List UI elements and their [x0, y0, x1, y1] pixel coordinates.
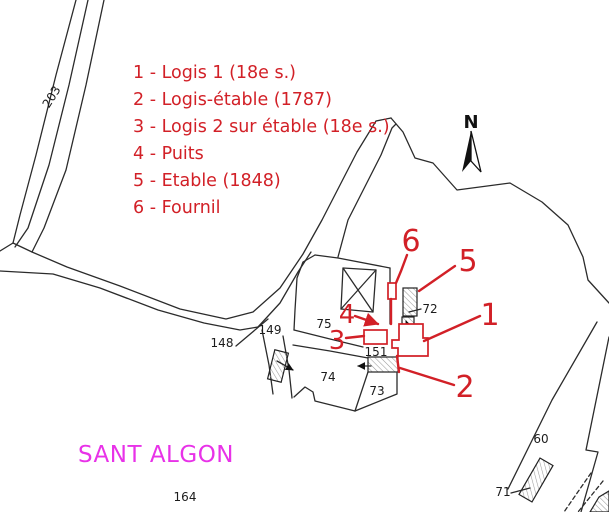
leader-6 — [396, 255, 407, 283]
site-plan: N 1 - Logis 1 (18e s.) 2 - Logis-étable … — [0, 0, 609, 512]
legend-item-4: 4 - Puits — [133, 144, 204, 164]
parcel-75: 75 — [316, 317, 331, 331]
leader-5 — [419, 266, 455, 291]
parcel-73: 73 — [369, 384, 384, 398]
southeast-parcels — [508, 322, 609, 512]
building-3-logis2 — [364, 330, 387, 344]
legend-item-2: 2 - Logis-étable (1787) — [133, 90, 332, 110]
north-label: N — [463, 112, 478, 133]
callout-2: 2 — [455, 370, 474, 405]
map-canvas: N 1 - Logis 1 (18e s.) 2 - Logis-étable … — [0, 0, 609, 512]
road-parcel-203 — [0, 0, 104, 252]
callout-6: 6 — [401, 224, 420, 259]
leader-3 — [346, 336, 364, 338]
north-arrow-solid-half — [462, 131, 471, 172]
leader-4-arrow — [355, 316, 378, 324]
parcel-149: 149 — [259, 323, 282, 337]
callout-1: 1 — [480, 298, 499, 333]
legend-item-1: 1 - Logis 1 (18e s.) — [133, 63, 296, 83]
parcel-72: 72 — [422, 302, 437, 316]
north-arrow: N — [462, 112, 481, 172]
leader-1 — [424, 316, 480, 341]
site-boundary — [391, 118, 609, 303]
parcel-edge — [581, 337, 609, 512]
place-name: SANT ALGON — [78, 442, 234, 468]
building-wall — [315, 255, 390, 268]
path-edge — [338, 124, 396, 257]
building-1-logis1 — [392, 324, 428, 356]
legend-item-3: 3 - Logis 2 sur étable (18e s.) — [133, 117, 390, 137]
parcel-203: 203 — [40, 83, 64, 110]
building-71 — [519, 458, 553, 502]
legend-item-5: 5 - Etable (1848) — [133, 171, 281, 191]
parcel-edge — [294, 387, 355, 411]
parcel-148: 148 — [211, 336, 234, 350]
boundary-line — [391, 118, 609, 303]
callout-5: 5 — [458, 244, 477, 279]
parcel-edge — [508, 322, 597, 489]
legend-item-6: 6 - Fournil — [133, 198, 221, 218]
road-edge — [0, 271, 258, 330]
parcel-60: 60 — [533, 432, 548, 446]
north-arrow-open-half — [471, 131, 481, 172]
legend: 1 - Logis 1 (18e s.) 2 - Logis-étable (1… — [133, 63, 390, 218]
parcel-164: 164 — [174, 490, 197, 504]
building-wall — [294, 255, 315, 330]
building-6-fournil — [388, 283, 396, 299]
hatched-buildings — [268, 288, 553, 502]
leader-2 — [400, 368, 454, 385]
building-2-logis-etable — [368, 357, 398, 372]
parcel-151: 151 — [365, 345, 388, 359]
road-edge — [13, 0, 76, 243]
road-edge — [0, 243, 13, 251]
parcel-74: 74 — [320, 370, 335, 384]
parcel-divider — [355, 372, 368, 411]
parcel-71: 71 — [495, 485, 510, 499]
